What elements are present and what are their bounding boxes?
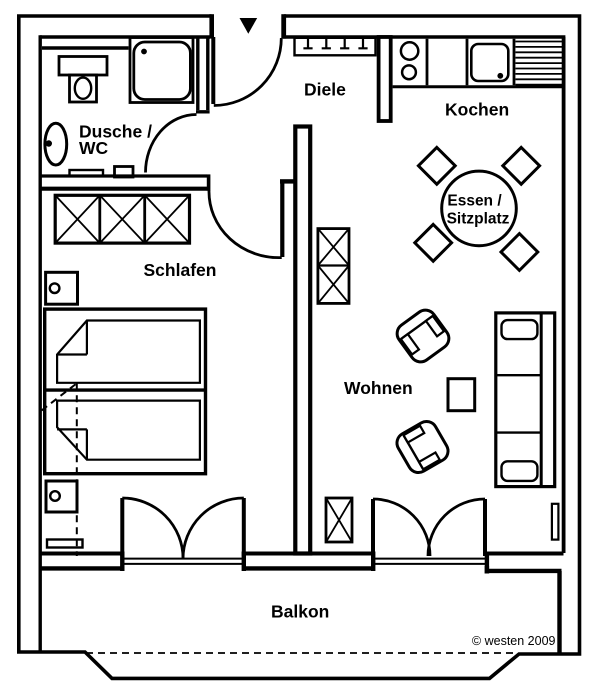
- svg-text:Wohnen: Wohnen: [344, 378, 413, 398]
- svg-text:© westen 2009: © westen 2009: [472, 634, 556, 648]
- svg-text:WC: WC: [79, 138, 109, 158]
- svg-text:Diele: Diele: [304, 79, 346, 99]
- svg-text:Sitzplatz: Sitzplatz: [447, 210, 510, 227]
- svg-text:Kochen: Kochen: [445, 99, 509, 119]
- svg-text:Essen /: Essen /: [447, 192, 502, 209]
- svg-text:Schlafen: Schlafen: [144, 260, 217, 280]
- svg-text:Balkon: Balkon: [271, 602, 329, 622]
